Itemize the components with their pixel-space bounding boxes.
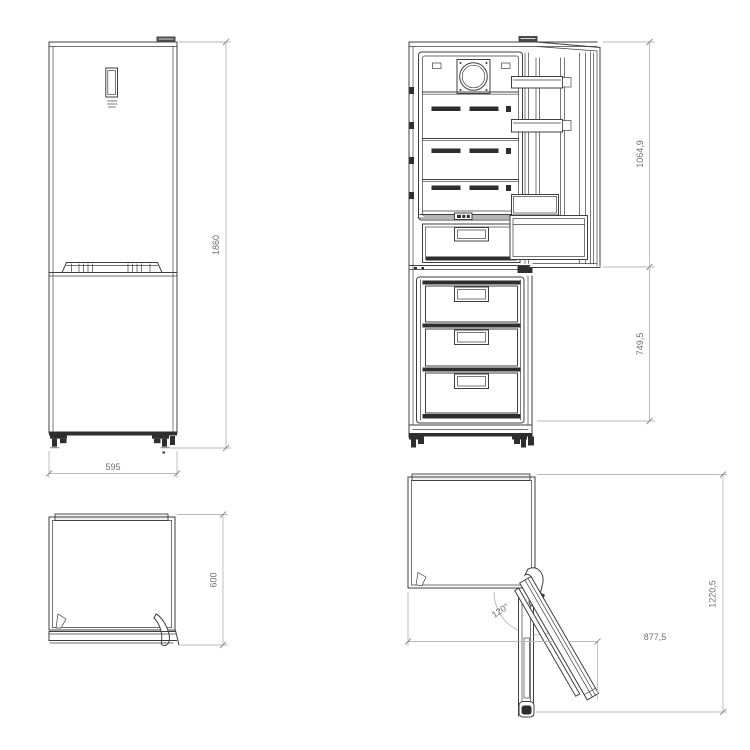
freezer-drawer-2 (423, 324, 521, 367)
freezer-drawer-1 (423, 281, 521, 323)
hinge-left-top (56, 614, 66, 628)
compartment-divider (409, 266, 530, 274)
dim-label-total-width: 595 (105, 462, 120, 472)
front-view-open (409, 36, 600, 448)
vent-left (433, 63, 442, 69)
interior-floor (418, 211, 523, 220)
dim-fridge-door-height: 1064,9 (603, 39, 655, 270)
foot-right-open (512, 437, 534, 448)
door-bottom-hinge (523, 268, 533, 274)
foot-left (50, 436, 67, 448)
dim-label-freezer-door-height: 749,5 (635, 333, 645, 356)
door-bottom-bin (510, 216, 588, 260)
door-split-line (49, 273, 177, 277)
freezer-drawer-3 (423, 368, 521, 414)
drawing-canvas: 1860 595 (0, 0, 750, 750)
glass-shelves (423, 92, 519, 191)
top-hinge-cover (157, 37, 176, 43)
crisper-drawer (423, 224, 521, 263)
door-bin-1 (512, 77, 572, 89)
dim-label-total-height: 1860 (211, 235, 221, 255)
dim-label-fridge-door-height: 1064,9 (635, 140, 645, 168)
dim-label-depth: 600 (209, 572, 219, 587)
door-bin-3 (512, 195, 559, 216)
top-view-open: 120° (408, 474, 599, 717)
dim-total-height: 1860 (171, 39, 231, 451)
dim-label-open-width: 877,5 (644, 632, 667, 642)
base-and-feet (49, 432, 177, 454)
dim-label-open-depth: 1220,5 (708, 580, 718, 608)
handle-recess (62, 263, 162, 273)
dim-open-depth: 1220,5 (536, 472, 727, 716)
foot-right (152, 436, 175, 454)
dim-total-width: 595 (46, 451, 180, 478)
closed-door-edge (49, 631, 179, 646)
freezer-interior (417, 277, 525, 423)
door-bin-2 (512, 120, 572, 133)
foot-left-open (409, 437, 424, 448)
open-fridge-door (510, 42, 600, 273)
front-view-closed (49, 37, 177, 454)
dim-freezer-door-height: 749,5 (537, 267, 655, 424)
dim-label-door-angle: 120° (490, 601, 511, 620)
cabinet-top-outline (49, 517, 175, 630)
door-display-panel (106, 68, 118, 107)
fridge-interior (410, 52, 524, 263)
dim-depth: 600 (177, 512, 228, 649)
vent-right (502, 63, 511, 69)
top-hinge-open (519, 36, 538, 42)
refrigerator-dimension-drawing: 1860 595 (0, 0, 750, 750)
hinge-left-top-open (416, 573, 426, 586)
top-view-closed (49, 514, 179, 646)
fan-icon (457, 60, 490, 94)
cabinet-top-open-outline (408, 477, 535, 588)
